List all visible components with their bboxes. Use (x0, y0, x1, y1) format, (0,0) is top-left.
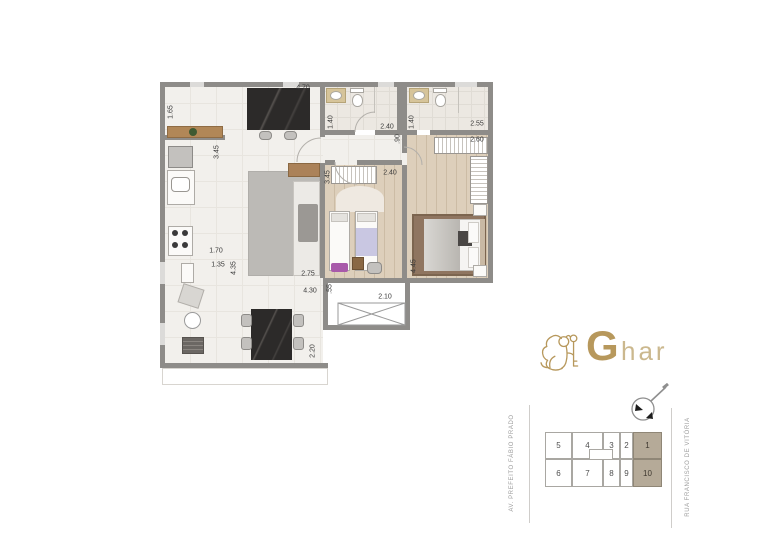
dimension-label: 2.20 (310, 344, 317, 358)
key-plan-unit-9: 9 (620, 459, 633, 487)
key-plan-core (589, 449, 613, 460)
street-label-left: AV. PREFEITO FÁBIO PRADO (509, 408, 515, 518)
brand-suffix: har (621, 338, 668, 364)
dimension-label: 1.40 (328, 115, 335, 129)
brand-initial: G (586, 326, 619, 366)
key-plan-unit-10: 10 (633, 459, 662, 487)
dimension-label: 2.60 (470, 137, 484, 144)
dimension-label: 2.55 (470, 121, 484, 128)
key-plan-unit-1: 1 (633, 432, 662, 459)
dimension-label: 4.70 (296, 85, 310, 92)
dimension-label: 4.45 (411, 259, 418, 273)
key-plan-unit-8: 8 (603, 459, 620, 487)
dimension-label: 1.35 (211, 262, 225, 269)
dimension-label: .55 (327, 284, 334, 294)
dimension-label: 2.40 (383, 170, 397, 177)
dimension-label: 2.75 (301, 271, 315, 278)
key-plan-unit-6: 6 (545, 459, 572, 487)
street-label-right: RUA FRANCISCO DE VITÓRIA (685, 411, 691, 523)
lion-with-key-icon (537, 329, 589, 377)
dimension-label: .90 (395, 134, 402, 144)
north-arrow-icon (624, 383, 672, 427)
key-plan-unit-7: 7 (572, 459, 603, 487)
dimension-label: 1.70 (209, 248, 223, 255)
key-plan-unit-5: 5 (545, 432, 572, 459)
dimension-label: 3.45 (214, 145, 221, 159)
dimension-label: 4.30 (303, 288, 317, 295)
dimension-label: 2.10 (378, 294, 392, 301)
dimension-label: 1.40 (409, 115, 416, 129)
street-line-right (671, 408, 672, 528)
dimension-label: 3.45 (325, 170, 332, 184)
floor-plan-page: 4.701.653.451.402.401.402.552.60.903.452… (0, 0, 768, 557)
key-plan-unit-2: 2 (620, 432, 633, 459)
street-line-left (529, 405, 530, 523)
dimension-label: 4.35 (231, 261, 238, 275)
dimension-label: 2.40 (380, 124, 394, 131)
dimension-label: 1.65 (168, 105, 175, 119)
